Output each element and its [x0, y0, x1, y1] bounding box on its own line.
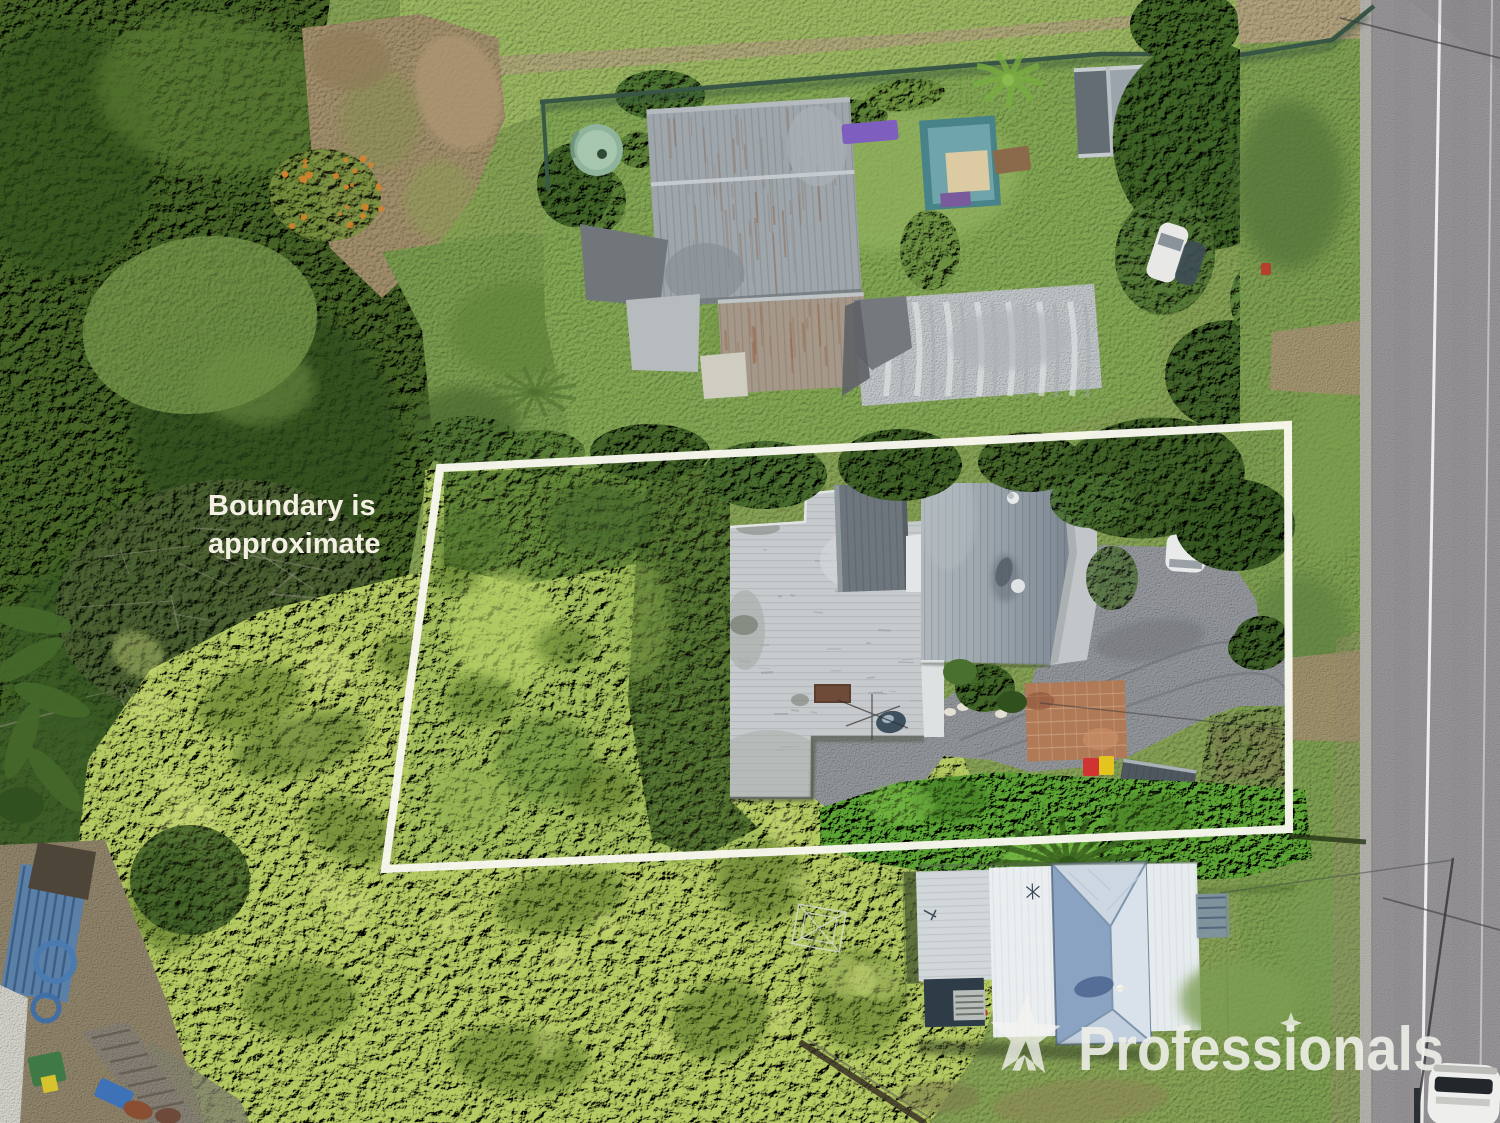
svg-text:Boundary is: Boundary is [208, 490, 376, 522]
svg-text:Professionals: Professionals [1078, 1015, 1444, 1084]
svg-text:approximate: approximate [208, 528, 380, 560]
